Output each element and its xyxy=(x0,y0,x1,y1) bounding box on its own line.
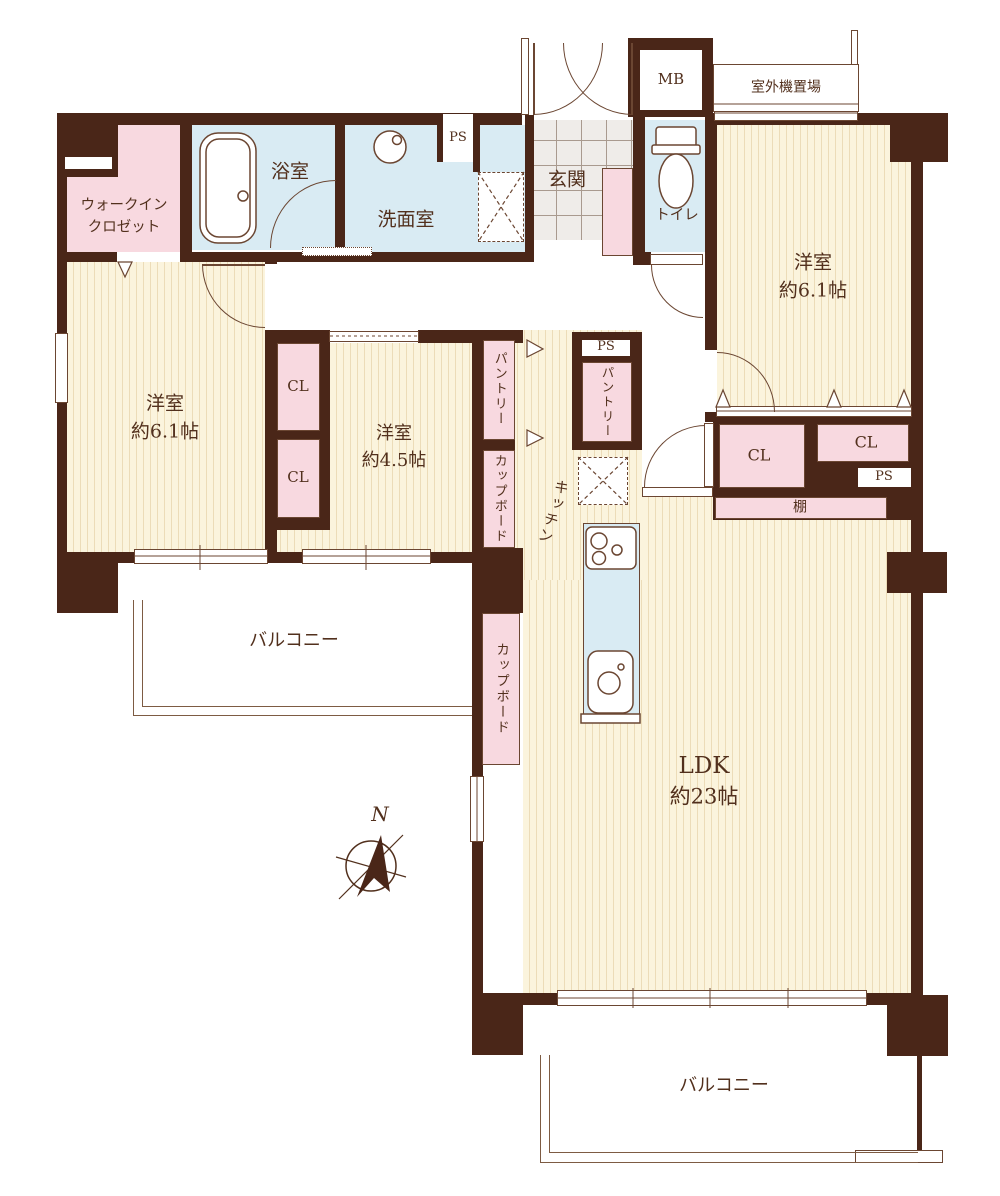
cl-left-upper-label: CL xyxy=(287,377,308,395)
wall xyxy=(472,548,523,613)
ps-washroom-label: PS xyxy=(449,130,467,146)
kitchen-hatch-box xyxy=(578,457,628,505)
ldk-label: LDK xyxy=(679,753,730,781)
window-ldk-side xyxy=(470,776,484,842)
wall xyxy=(473,125,480,172)
compass-north-label: N xyxy=(371,802,389,826)
doorway-bedroom-left xyxy=(265,264,277,330)
front-door-right xyxy=(563,43,633,115)
doorway-toilet xyxy=(650,254,703,265)
wall xyxy=(335,125,345,252)
doorway-bedroom-right xyxy=(705,350,717,412)
washroom-hatch-box xyxy=(478,172,524,242)
kitchen-counter xyxy=(583,523,640,722)
doorway-wic xyxy=(117,252,180,262)
sliding-track-small xyxy=(329,331,419,342)
window-bedroom-left xyxy=(134,549,268,564)
cl-left-lower-label: CL xyxy=(287,468,308,486)
wall xyxy=(472,613,482,765)
bedroom-right-label: 洋室 xyxy=(794,252,832,275)
pantry-center-label: パントリー xyxy=(600,366,615,439)
bedroom-left-label: 洋室 xyxy=(146,393,184,416)
balcony-left-rail-inner xyxy=(142,600,472,707)
cupboard-lower-label: カップボード xyxy=(493,643,509,736)
washroom-label: 洗面室 xyxy=(377,209,434,232)
wall xyxy=(525,115,534,262)
balcony-left-label: バルコニー xyxy=(249,630,339,652)
ldk-door-leaf xyxy=(704,423,714,487)
compass-icon xyxy=(336,835,406,899)
balcony-bottom-rail-inner xyxy=(549,1055,918,1153)
mb-label: MB xyxy=(658,70,684,88)
cupboard-upper-label: カップボード xyxy=(491,454,507,544)
wall xyxy=(418,330,472,343)
window-bedroom-small xyxy=(302,549,431,564)
washroom-opening xyxy=(302,247,372,256)
floor-bedroom-small xyxy=(330,343,472,552)
shelf-label: 棚 xyxy=(793,500,807,517)
shoe-cabinet xyxy=(602,168,633,256)
entrance-label: 玄関 xyxy=(548,169,586,192)
ps-ldk-label: PS xyxy=(875,469,893,485)
wall xyxy=(180,125,192,252)
doorway-ldk-threshold xyxy=(642,487,713,497)
pantry-left-label: パントリー xyxy=(491,352,507,427)
ldk-door xyxy=(644,425,706,487)
bedroom-small-label: 洋室 xyxy=(376,423,412,445)
balcony-bottom-label: バルコニー xyxy=(679,1075,769,1097)
wall-corner xyxy=(472,993,523,1055)
toilet-door xyxy=(651,265,703,318)
outdoor-unit-label: 室外機置場 xyxy=(751,80,821,97)
toilet-room xyxy=(645,120,705,252)
wall-pillar xyxy=(887,552,947,593)
ldk-size: 約23帖 xyxy=(670,784,739,809)
cl-right-b-label: CL xyxy=(855,432,878,451)
bedroom-small-size: 約4.5帖 xyxy=(362,450,427,472)
walk-in-closet-label: ウォークイン xyxy=(81,197,168,214)
walk-in-closet-label-2: クロゼット xyxy=(88,219,161,236)
wall-vent xyxy=(65,157,112,169)
window-ldk xyxy=(557,990,867,1006)
wall xyxy=(633,252,651,265)
ps-kitchen-label: PS xyxy=(597,339,615,355)
window-bedroom-left-side xyxy=(55,333,68,403)
vestibule-wall xyxy=(521,38,529,115)
toilet-label: トイレ xyxy=(655,207,699,224)
wall xyxy=(472,343,483,580)
wall xyxy=(483,440,515,450)
floor-plan: ウォークイン クロゼット 浴室 洗面室 PS 玄関 MB 室外機置場 トイレ 洋… xyxy=(0,0,1000,1196)
bath-label: 浴室 xyxy=(271,161,309,184)
wall xyxy=(705,115,717,262)
wall xyxy=(633,115,645,262)
bedroom-right-size: 約6.1帖 xyxy=(779,280,847,303)
wall-corner xyxy=(890,113,948,162)
bedroom-left-size: 約6.1帖 xyxy=(131,421,199,444)
cl-right-a-label: CL xyxy=(748,445,771,464)
